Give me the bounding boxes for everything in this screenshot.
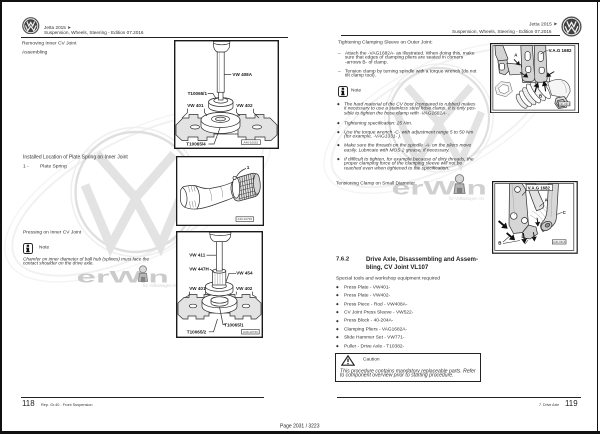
svg-text:VW 401: VW 401: [187, 103, 204, 108]
svg-text:A40-10733: A40-10733: [243, 330, 258, 334]
svg-text:B: B: [539, 94, 542, 99]
svg-text:VW 402: VW 402: [236, 103, 253, 108]
svg-text:B: B: [498, 241, 501, 246]
svg-text:-V.A.G 1682: -V.A.G 1682: [547, 48, 572, 53]
svg-text:V.A.G 1682: V.A.G 1682: [527, 186, 550, 191]
svg-text:VW 402: VW 402: [236, 286, 253, 291]
svg-text:A40-0316: A40-0316: [553, 240, 566, 244]
svg-text:für Volkswagen AG: für Volkswagen AG: [449, 196, 484, 201]
svg-text:A40-0317: A40-0317: [558, 102, 571, 106]
svg-text:T10065/2: T10065/2: [187, 329, 207, 334]
svg-text:T10065/1: T10065/1: [188, 91, 208, 96]
svg-text:T10065/1: T10065/1: [224, 322, 244, 327]
svg-text:VW 411: VW 411: [189, 253, 206, 258]
svg-text:1: 1: [246, 165, 249, 171]
svg-text:A40-10739: A40-10739: [237, 217, 252, 221]
svg-text:VW 401: VW 401: [189, 286, 206, 291]
svg-text:A40-10015: A40-10015: [244, 140, 259, 144]
svg-text:VW 408A: VW 408A: [232, 72, 252, 77]
svg-text:erW: erW: [77, 267, 143, 286]
svg-text:VW 454: VW 454: [236, 271, 253, 276]
svg-text:VW 447H: VW 447H: [189, 267, 209, 272]
svg-text:A: A: [514, 52, 517, 57]
svg-text:T10065/4: T10065/4: [186, 142, 206, 147]
svg-text:für Volkswagen AG: für Volkswagen AG: [143, 283, 178, 288]
